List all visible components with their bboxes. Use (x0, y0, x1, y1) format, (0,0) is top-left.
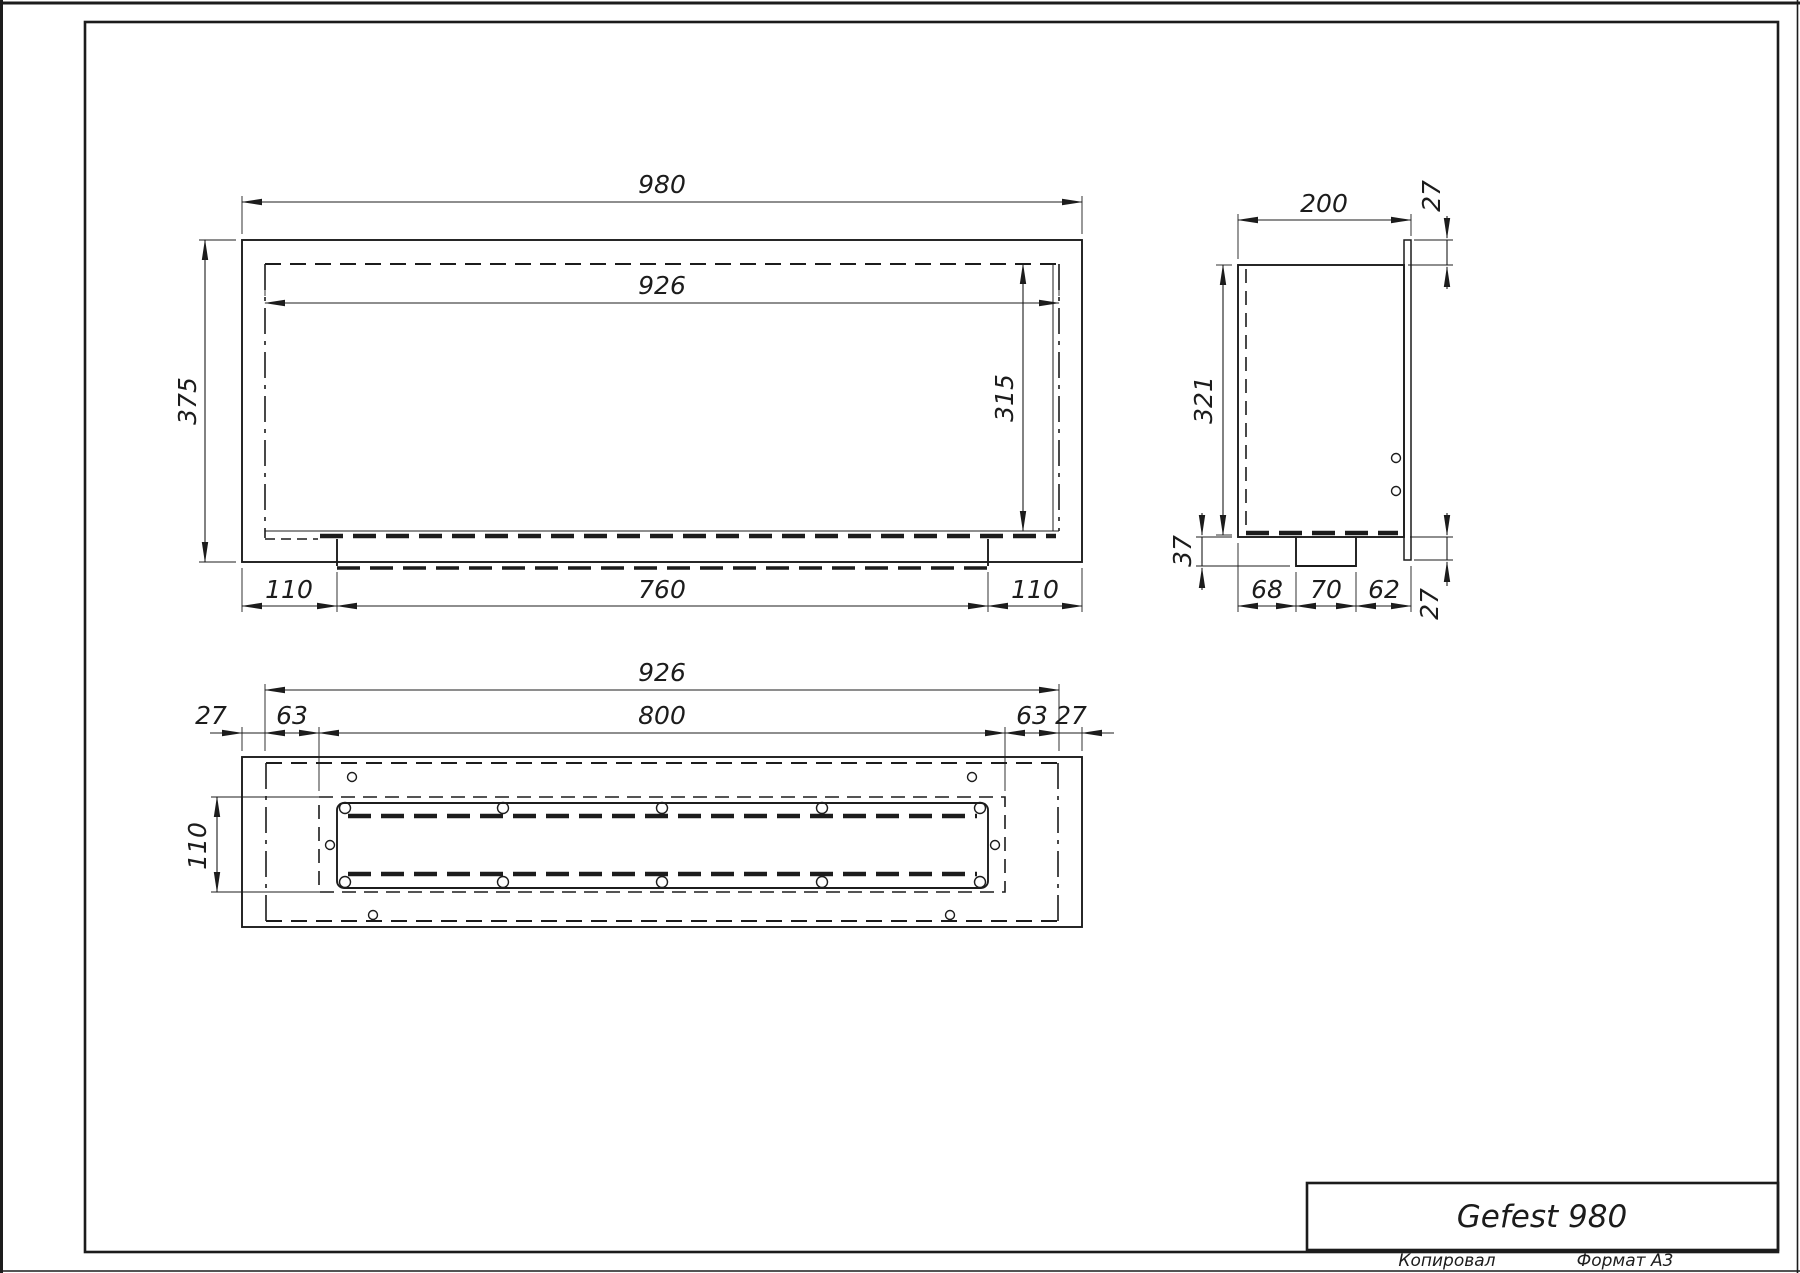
side-bottom-flange-label: 27 (1415, 588, 1444, 620)
side-tray-depth-label: 37 (1168, 535, 1197, 567)
slot-screw-hole (975, 877, 986, 888)
slot-screw-hole (657, 877, 668, 888)
plan-opening-hidden-outline (319, 797, 1005, 892)
slot-screw-hole (498, 803, 509, 814)
plan-inner-width-label: 926 (638, 658, 686, 687)
drawing-canvas: 980 926 375 315 110 760 110 200 (0, 0, 1800, 1273)
slot-screw-hole (340, 877, 351, 888)
plan-offset-right-label: 63 (1016, 701, 1048, 730)
side-burner-tray (1296, 537, 1356, 566)
side-top-flange-label: 27 (1417, 180, 1446, 212)
front-inner-height-label: 315 (990, 374, 1019, 422)
plan-wall-left-label: 27 (195, 701, 227, 730)
slot-screw-hole (498, 877, 509, 888)
drawing-frame (0, 0, 1800, 1273)
side-bottom-right-label: 62 (1368, 575, 1400, 604)
slot-side-hole (991, 841, 1000, 850)
front-inner-width-label: 926 (638, 271, 686, 300)
front-outer-width-label: 980 (638, 170, 686, 199)
front-outer-height-label: 375 (173, 377, 202, 425)
front-bottom-left-label: 110 (265, 575, 313, 604)
drawing-sheet: 980 926 375 315 110 760 110 200 (0, 0, 1800, 1273)
side-inner-height-label: 321 (1189, 376, 1218, 424)
copied-label: Копировал (1398, 1251, 1495, 1271)
slot-screw-hole (975, 803, 986, 814)
format-label: Формат А3 (1577, 1251, 1674, 1271)
plan-outer-body (242, 757, 1082, 927)
slot-screw-hole (340, 803, 351, 814)
bottom-plan-view: 926 800 27 63 63 27 110 (183, 658, 1114, 927)
front-tray-width-label: 760 (638, 575, 686, 604)
side-depth-label: 200 (1300, 189, 1348, 218)
flange-hole (348, 773, 357, 782)
side-bottom-tray-label: 70 (1310, 575, 1342, 604)
side-front-flange-plate (1404, 240, 1411, 560)
plan-offset-left-label: 63 (276, 701, 308, 730)
slot-screw-hole (817, 877, 828, 888)
inner-border (85, 22, 1778, 1252)
plan-slot-length-label: 800 (638, 701, 686, 730)
flange-hole (946, 911, 955, 920)
front-view: 980 926 375 315 110 760 110 (173, 170, 1082, 612)
slot-side-hole (326, 841, 335, 850)
side-view: 200 27 321 37 68 70 62 27 (1168, 180, 1453, 620)
side-mounting-hole (1392, 487, 1401, 496)
side-mounting-hole (1392, 454, 1401, 463)
flange-hole (968, 773, 977, 782)
side-bottom-left-label: 68 (1251, 575, 1283, 604)
slot-screw-hole (657, 803, 668, 814)
slot-screw-hole (817, 803, 828, 814)
flange-hole (369, 911, 378, 920)
side-body (1238, 265, 1404, 537)
drawing-title: Gefest 980 (1457, 1199, 1627, 1235)
plan-slot-width-label: 110 (183, 822, 212, 870)
plan-wall-right-label: 27 (1055, 701, 1087, 730)
title-block: Gefest 980 Копировал Формат А3 (1307, 1183, 1778, 1271)
front-bottom-right-label: 110 (1011, 575, 1059, 604)
